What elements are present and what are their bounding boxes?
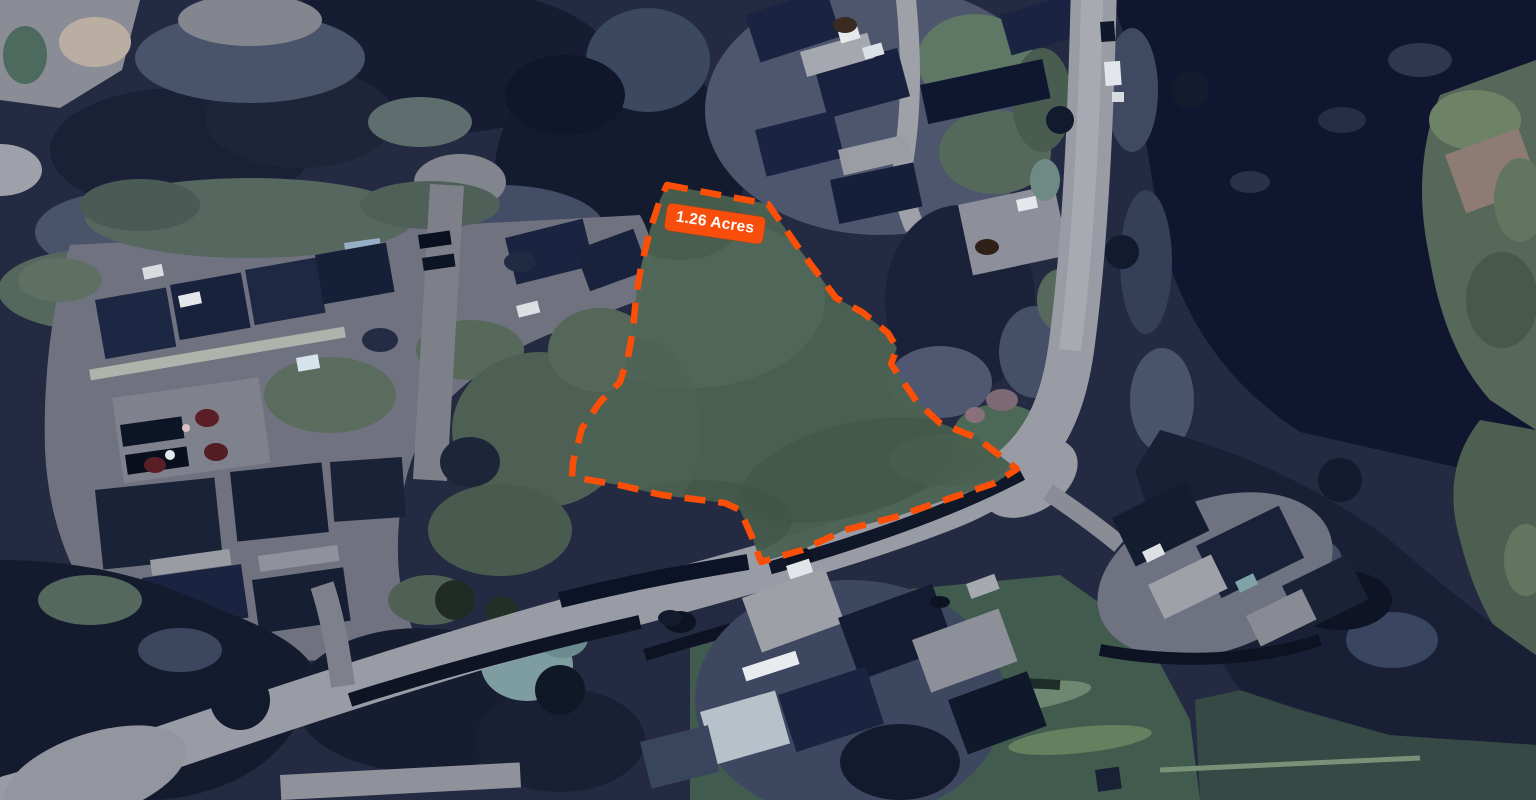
satellite-map bbox=[0, 0, 1536, 800]
aerial-map-view: 1.26 Acres bbox=[0, 0, 1536, 800]
